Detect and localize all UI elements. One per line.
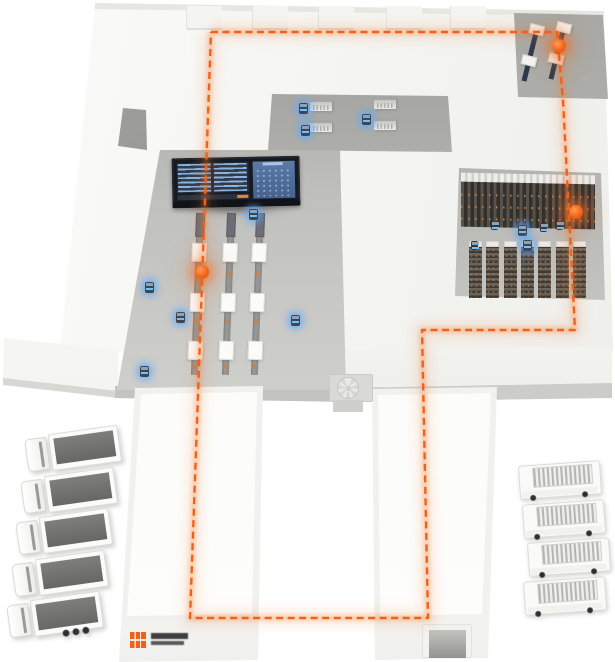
agv-blue-light bbox=[492, 227, 499, 229]
agv-top bbox=[363, 115, 370, 118]
agv-robot bbox=[299, 103, 308, 114]
van-wheel bbox=[582, 491, 588, 497]
conveyor-mast bbox=[226, 213, 236, 237]
agv-top bbox=[541, 224, 548, 227]
roof-vent bbox=[186, 6, 222, 30]
dashboard-map-panel bbox=[253, 161, 296, 199]
facility-scene bbox=[0, 0, 615, 662]
agv-blue-light bbox=[292, 321, 299, 323]
agv-top bbox=[524, 241, 531, 244]
floor-rack-unit bbox=[504, 241, 517, 298]
dashboard-text-column bbox=[214, 163, 248, 192]
truck-trailer bbox=[35, 550, 109, 596]
agv-top bbox=[302, 126, 309, 129]
conveyor-pallet-box bbox=[251, 243, 267, 263]
workstation-desk bbox=[310, 100, 332, 111]
truck-wheel bbox=[82, 626, 90, 634]
right-wing-doorway bbox=[422, 624, 472, 658]
box-van-truck bbox=[523, 576, 607, 616]
agv-blue-light bbox=[302, 131, 309, 133]
truck-wheel bbox=[62, 629, 70, 637]
truck-cab bbox=[15, 520, 41, 556]
agv-robot bbox=[540, 223, 547, 232]
floor-rack-unit bbox=[486, 241, 499, 298]
van-wheel bbox=[535, 611, 541, 617]
truck-wheel bbox=[72, 628, 80, 636]
conveyor-pallet-box bbox=[247, 341, 263, 361]
dashboard-orange-indicator bbox=[237, 195, 248, 198]
truck-trailer-top bbox=[49, 472, 112, 506]
conveyor-pallet-box bbox=[191, 243, 207, 263]
truck-trailer bbox=[44, 467, 118, 513]
agv-robot bbox=[145, 282, 154, 293]
company-logo-mark bbox=[130, 632, 146, 648]
control-dashboard-screen bbox=[171, 156, 300, 209]
doorway-opening bbox=[429, 630, 466, 658]
agv-blue-light bbox=[472, 247, 479, 249]
logo-text-bars bbox=[151, 633, 188, 639]
workstation-desk bbox=[374, 119, 396, 130]
dashboard-map-dots bbox=[255, 168, 294, 197]
box-van-truck bbox=[522, 499, 606, 539]
dashboard-text-panel bbox=[177, 162, 250, 194]
dashboard-text-column bbox=[178, 164, 212, 193]
agv-robot bbox=[176, 312, 185, 323]
truck-cab bbox=[6, 603, 32, 639]
van-wheel bbox=[591, 568, 597, 574]
agv-robot bbox=[362, 114, 371, 125]
agv-top bbox=[141, 367, 148, 370]
machine-box bbox=[555, 21, 572, 34]
conveyor-pallet-box bbox=[218, 341, 234, 361]
truck-cab bbox=[11, 562, 37, 598]
rack-orange-lights bbox=[486, 247, 499, 298]
conveyor-pallet-box bbox=[189, 293, 205, 313]
box-van-truck bbox=[527, 537, 611, 577]
agv-robot bbox=[491, 221, 498, 230]
conveyor-pallet-box bbox=[249, 293, 265, 313]
floor-rack-unit bbox=[556, 241, 569, 298]
truck-cab bbox=[20, 479, 46, 515]
truck-trailer bbox=[39, 508, 113, 554]
truck-windshield bbox=[26, 566, 33, 592]
rack-orange-lights bbox=[573, 247, 586, 298]
workstation-desk bbox=[310, 121, 332, 132]
truck-windshield bbox=[21, 607, 28, 633]
wing-connector-unit bbox=[329, 374, 373, 402]
agv-robot bbox=[523, 240, 532, 251]
desk-vents bbox=[313, 105, 329, 110]
right-loading-wing bbox=[366, 384, 500, 662]
truck-windshield bbox=[35, 483, 42, 509]
roof-vent bbox=[450, 6, 486, 30]
machine-box bbox=[521, 54, 538, 67]
truck-windshield bbox=[30, 524, 37, 550]
fan-vent-icon bbox=[337, 377, 359, 399]
truck-trailer-top bbox=[40, 555, 103, 589]
floor-rack-unit bbox=[538, 241, 551, 298]
rack-orange-lights bbox=[504, 247, 517, 298]
agv-robot bbox=[471, 241, 478, 250]
roof-vent bbox=[386, 6, 422, 30]
company-logo bbox=[130, 632, 202, 650]
agv-blue-light bbox=[363, 120, 370, 122]
agv-top bbox=[472, 242, 479, 245]
desk-vents bbox=[377, 103, 393, 108]
agv-robot bbox=[556, 221, 563, 230]
desk-vents bbox=[377, 124, 393, 129]
rack-orange-lights bbox=[461, 194, 595, 199]
truck-trailer bbox=[48, 425, 122, 471]
desk-vents bbox=[313, 126, 329, 131]
agv-robot bbox=[249, 209, 258, 220]
agv-top bbox=[492, 222, 499, 225]
dashboard-map-title-bar bbox=[263, 162, 283, 165]
agv-top bbox=[300, 104, 307, 107]
agv-top bbox=[250, 210, 257, 213]
agv-top bbox=[177, 313, 184, 316]
van-roof-ribs bbox=[541, 541, 602, 565]
agv-blue-light bbox=[250, 215, 257, 217]
truck-trailer-top bbox=[53, 430, 116, 464]
rack-orange-lights bbox=[521, 247, 534, 298]
agv-blue-light bbox=[541, 229, 548, 231]
agv-robot bbox=[291, 315, 300, 326]
agv-robot bbox=[518, 225, 527, 236]
conveyor-mast bbox=[195, 213, 205, 237]
floor-rack-unit bbox=[573, 241, 586, 298]
van-wheel bbox=[534, 534, 540, 540]
agv-blue-light bbox=[557, 227, 564, 229]
agv-blue-light bbox=[300, 109, 307, 111]
fan-hub bbox=[346, 386, 351, 391]
agv-robot bbox=[140, 366, 149, 377]
roof-vent bbox=[318, 6, 354, 30]
agv-blue-light bbox=[146, 288, 153, 290]
van-roof-ribs bbox=[536, 503, 597, 527]
dashboard-status-strip bbox=[177, 194, 249, 201]
marker-dock-machines bbox=[552, 39, 566, 53]
workstation-desk bbox=[374, 98, 396, 109]
truck-trailer-top bbox=[44, 513, 107, 547]
van-roof-ribs bbox=[532, 464, 593, 488]
truck-trailer-top bbox=[35, 596, 98, 630]
left-loading-wing bbox=[117, 384, 264, 662]
agv-robot bbox=[301, 125, 310, 136]
agv-blue-light bbox=[524, 246, 531, 248]
agv-blue-light bbox=[141, 372, 148, 374]
agv-blue-light bbox=[519, 231, 526, 233]
rack-orange-lights bbox=[469, 247, 482, 298]
truck-cab bbox=[24, 437, 50, 473]
marker-storage-bay bbox=[569, 205, 583, 219]
van-wheel bbox=[586, 530, 592, 536]
rack-orange-lights bbox=[556, 247, 569, 298]
agv-blue-light bbox=[177, 318, 184, 320]
agv-top bbox=[519, 226, 526, 229]
agv-top bbox=[557, 222, 564, 225]
conveyor-pallet-box bbox=[222, 243, 238, 263]
machine-box bbox=[548, 52, 565, 65]
agv-top bbox=[292, 316, 299, 319]
truck-windshield bbox=[39, 441, 46, 467]
van-roof-ribs bbox=[537, 580, 598, 604]
marker-production-line bbox=[195, 265, 209, 279]
van-wheel bbox=[530, 495, 536, 501]
van-wheel bbox=[587, 607, 593, 613]
roof-vent bbox=[252, 6, 288, 30]
back-rack-row bbox=[461, 173, 595, 230]
logo-text-bars bbox=[151, 641, 184, 645]
van-wheel bbox=[539, 572, 545, 578]
machine-box bbox=[528, 23, 545, 36]
conveyor-pallet-box bbox=[187, 341, 203, 361]
agv-top bbox=[146, 283, 153, 286]
box-van-truck bbox=[518, 460, 602, 500]
rack-orange-lights bbox=[538, 247, 551, 298]
wing-connector-step bbox=[333, 400, 363, 412]
conveyor-pallet-box bbox=[220, 293, 236, 313]
